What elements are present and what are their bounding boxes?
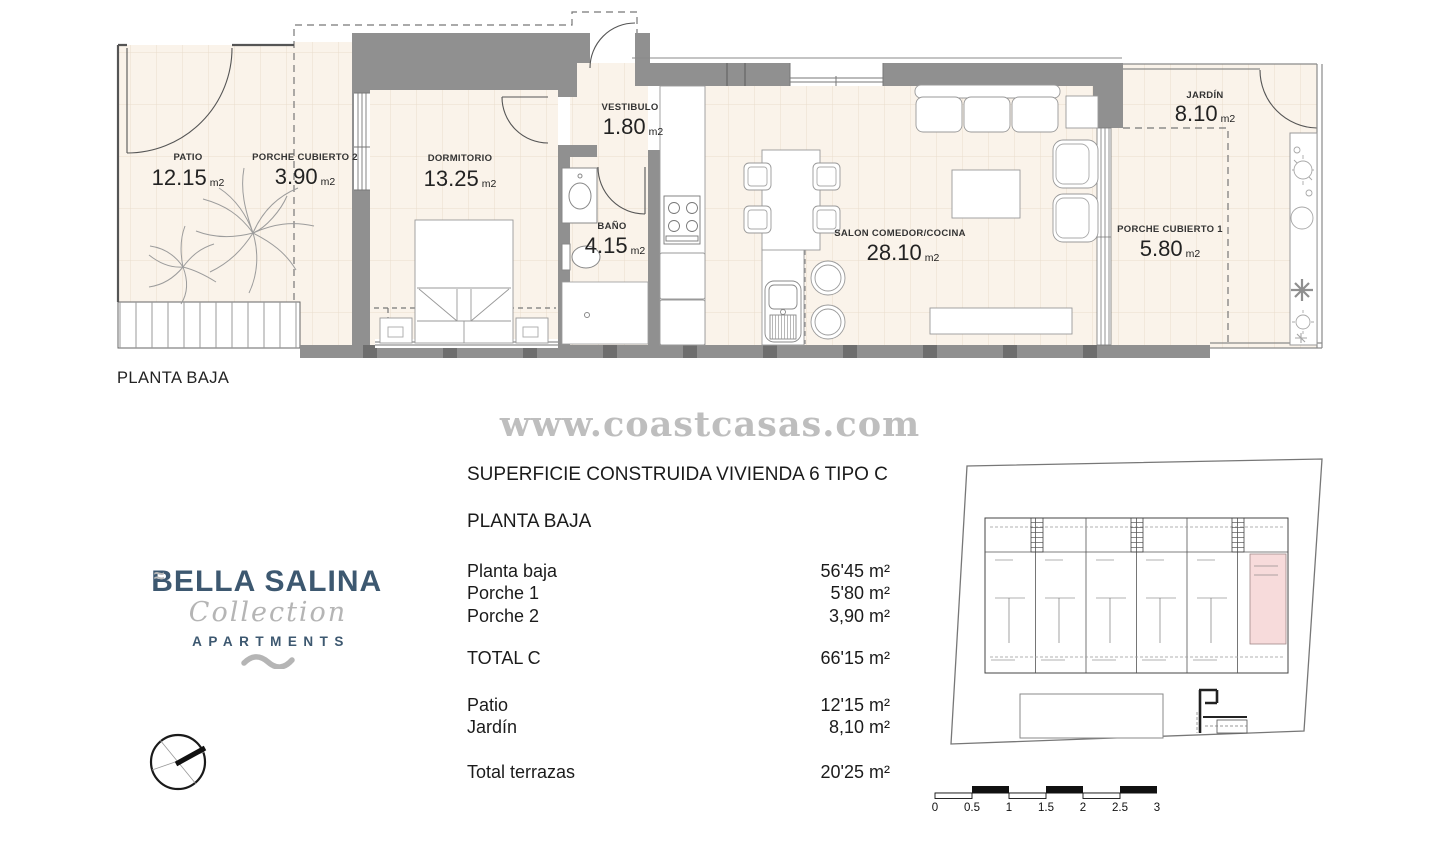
- svg-text:2.5: 2.5: [1112, 802, 1128, 814]
- side-table: [1066, 96, 1098, 128]
- window-dorm-west: [354, 93, 370, 190]
- compass-icon: [151, 735, 205, 789]
- summary-row: Planta baja 56'45 m²: [467, 561, 890, 582]
- summary-title: SUPERFICIE CONSTRUIDA VIVIENDA 6 TIPO C: [467, 464, 888, 486]
- svg-text:1.5: 1.5: [1038, 802, 1054, 814]
- row-label: TOTAL C: [467, 648, 541, 669]
- toilet-tank: [562, 244, 570, 270]
- room-label-bano: BAÑO: [597, 221, 626, 232]
- scale-white-segments: [935, 793, 1120, 799]
- room-area-vestibulo: 1.80m2: [603, 114, 664, 139]
- pool-house: [1197, 690, 1247, 733]
- coffee-table: [952, 170, 1020, 218]
- stair-cores: [1031, 518, 1244, 552]
- window-salon-sliding: [1097, 128, 1111, 345]
- armchair: [1053, 140, 1098, 188]
- logo-squiggle-icon: [128, 653, 408, 674]
- row-label: Porche 1: [467, 583, 539, 604]
- base-cabinet: [660, 253, 705, 299]
- wall-vestibule-west: [558, 33, 577, 97]
- tv-bench: [930, 308, 1072, 334]
- svg-text:2: 2: [1080, 802, 1086, 814]
- wall-bottom-porche1: [1110, 345, 1210, 358]
- room-label-salon: SALON COMEDOR/COCINA: [834, 228, 966, 239]
- wall-kitchen-divider: [648, 150, 660, 348]
- row-label: Porche 2: [467, 606, 539, 627]
- room-label-porche1: PORCHE CUBIERTO 1: [1117, 224, 1223, 235]
- row-value: 66'15 m²: [821, 648, 890, 669]
- logo-collection-text: Collection: [128, 597, 408, 628]
- row-label: Jardín: [467, 717, 517, 738]
- sink-basin: [569, 183, 591, 209]
- pool: [1020, 694, 1163, 738]
- floor-plan: PATIO 12.15m2 PORCHE CUBIERTO 2 3.90m2 D…: [118, 12, 1322, 358]
- row-value: 12'15 m²: [821, 695, 890, 716]
- svg-text:0: 0: [932, 802, 938, 814]
- room-label-jardin: JARDÍN: [1186, 90, 1223, 101]
- floor-porche2: [294, 42, 352, 348]
- summary-row: Porche 1 5'80 m²: [467, 583, 890, 604]
- summary-subtitle: PLANTA BAJA: [467, 511, 591, 533]
- row-label: Total terrazas: [467, 762, 575, 783]
- summary-row: Jardín 8,10 m²: [467, 717, 890, 738]
- hob: [664, 196, 700, 244]
- base-cabinet: [660, 300, 705, 345]
- svg-text:0.5: 0.5: [964, 802, 980, 814]
- svg-text:1: 1: [1006, 802, 1012, 814]
- highlighted-unit: [1250, 554, 1286, 644]
- scale-labels: 0 0.5 1 1.5 2 2.5 3: [932, 802, 1160, 814]
- logo-apartments-text: APARTMENTS: [128, 634, 408, 649]
- summary-row: Porche 2 3,90 m²: [467, 606, 890, 627]
- logo-wave-icon: ≈: [154, 566, 164, 587]
- window-dining: [790, 63, 883, 86]
- row-value: 20'25 m²: [821, 762, 890, 783]
- scale-bar: 0 0.5 1 1.5 2 2.5 3: [932, 786, 1160, 814]
- sofa: [915, 85, 1060, 132]
- row-label: Patio: [467, 695, 508, 716]
- wall-entry-jamb-west: [577, 33, 590, 63]
- site-plan: [951, 459, 1322, 744]
- scale-black-segments: [972, 786, 1157, 793]
- room-label-vestibulo: VESTIBULO: [601, 102, 658, 113]
- svg-text:3: 3: [1154, 802, 1160, 814]
- wall-top-outer: [352, 33, 577, 50]
- floorplan-page: { "plan": { "caption": "PLANTA BAJA", "r…: [0, 0, 1431, 848]
- row-value: 5'80 m²: [831, 583, 890, 604]
- room-label-porche2: PORCHE CUBIERTO 2: [252, 152, 358, 163]
- shower-drain: [585, 313, 590, 318]
- summary-row: Patio 12'15 m²: [467, 695, 890, 716]
- plan-caption: PLANTA BAJA: [117, 369, 229, 388]
- room-label-patio: PATIO: [173, 152, 202, 163]
- row-value: 8,10 m²: [829, 717, 890, 738]
- garden-planting-strip: [1290, 133, 1317, 345]
- row-value: 56'45 m²: [821, 561, 890, 582]
- watermark: www.coastcasas.com: [450, 404, 970, 445]
- unit-interior-lines: [991, 560, 1278, 660]
- wall-bano-top: [558, 145, 597, 157]
- dining-table: [762, 150, 820, 250]
- logo-brand-row: ≈BELLA SALINA: [128, 565, 408, 599]
- shower-tray: [562, 282, 648, 344]
- summary-total-row: TOTAL C 66'15 m²: [467, 648, 890, 669]
- wall-top-inner: [370, 50, 560, 90]
- island-sink: [765, 281, 801, 342]
- row-label: Planta baja: [467, 561, 557, 582]
- brand-logo: ≈BELLA SALINA Collection APARTMENTS: [128, 565, 408, 674]
- summary-terrace-total-row: Total terrazas 20'25 m²: [467, 762, 890, 783]
- room-label-dormitorio: DORMITORIO: [428, 153, 493, 164]
- terrace-steps: [118, 302, 300, 348]
- wall-entry-jamb-east: [635, 33, 650, 86]
- armchair: [1053, 194, 1098, 242]
- row-value: 3,90 m²: [829, 606, 890, 627]
- door-entry: [590, 23, 635, 68]
- logo-brand-text: BELLA SALINA: [151, 565, 382, 598]
